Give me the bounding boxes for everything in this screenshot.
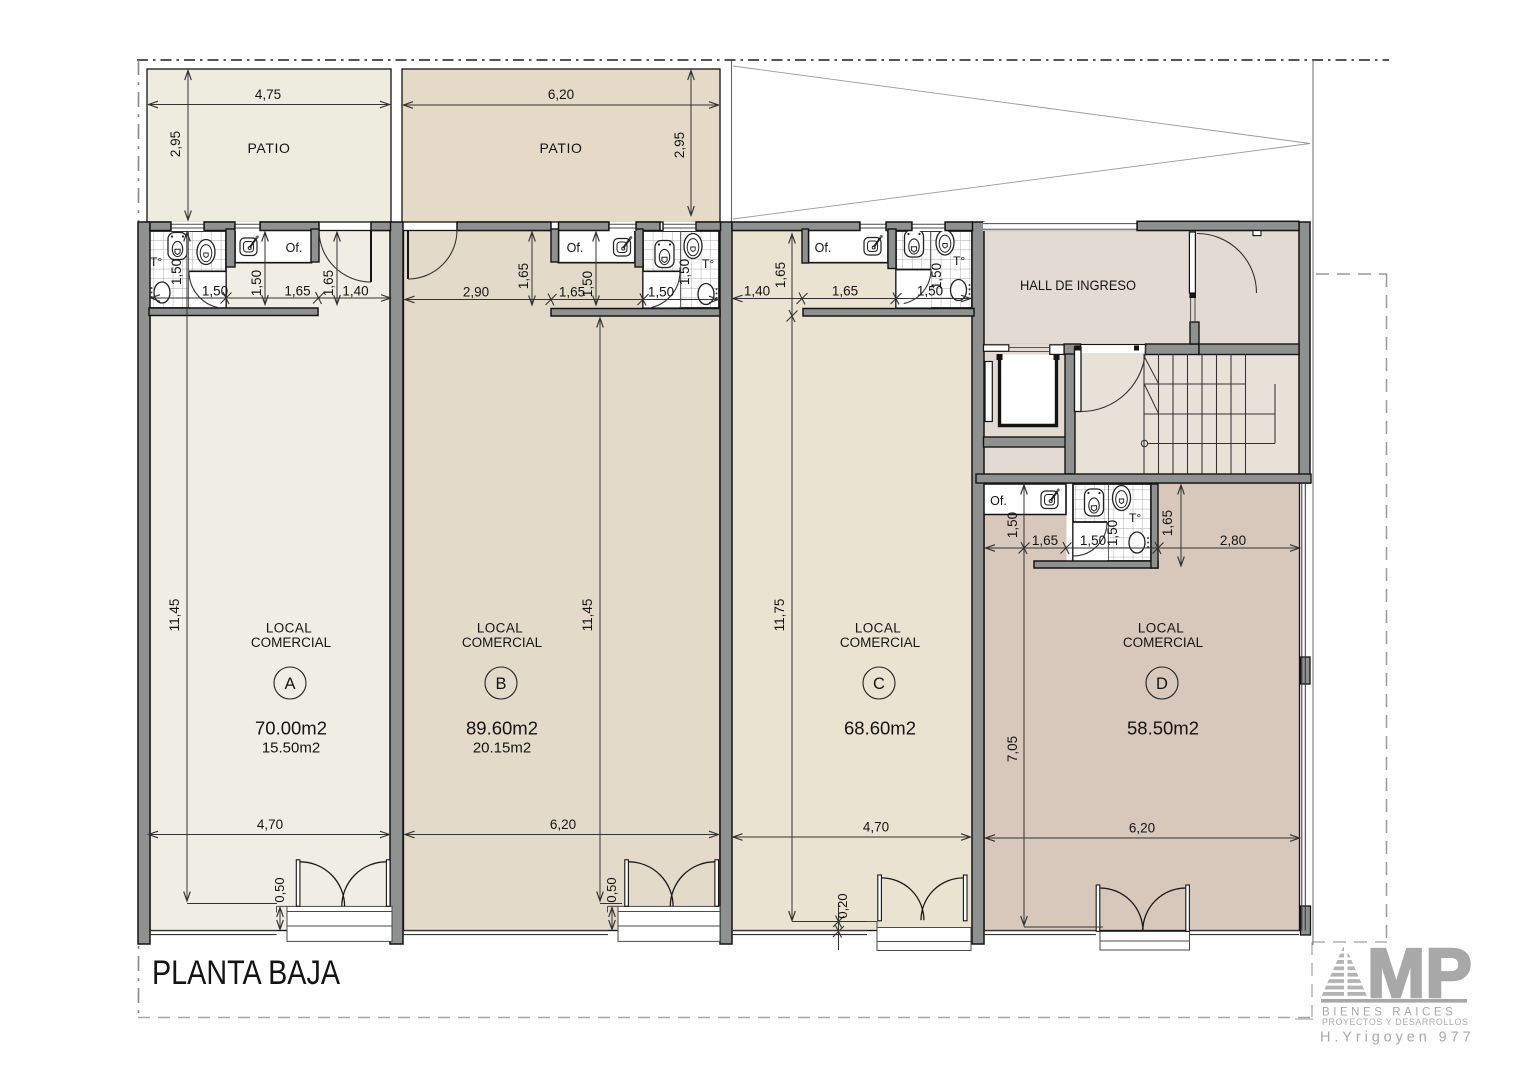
svg-text:B: B	[495, 675, 506, 693]
svg-text:1,40: 1,40	[342, 284, 368, 299]
svg-text:4,70: 4,70	[257, 817, 283, 832]
svg-text:Of.: Of.	[567, 241, 584, 255]
svg-text:7,05: 7,05	[1005, 736, 1020, 762]
svg-text:COMERCIAL: COMERCIAL	[251, 635, 332, 650]
svg-text:LOCAL: LOCAL	[266, 621, 312, 636]
svg-text:1,65: 1,65	[321, 270, 336, 296]
svg-text:PATIO: PATIO	[540, 140, 583, 156]
svg-text:1,50: 1,50	[1005, 512, 1020, 538]
svg-text:0,50: 0,50	[272, 877, 287, 902]
svg-text:1,50: 1,50	[677, 259, 692, 285]
svg-text:2,95: 2,95	[672, 132, 687, 158]
svg-text:0,50: 0,50	[604, 877, 619, 902]
svg-text:4,75: 4,75	[255, 87, 281, 102]
svg-text:D: D	[1156, 675, 1168, 693]
svg-text:1,65: 1,65	[832, 284, 858, 299]
svg-text:PATIO: PATIO	[248, 140, 291, 156]
svg-text:1,65: 1,65	[1032, 533, 1058, 548]
svg-text:T°: T°	[1129, 511, 1141, 525]
svg-text:C: C	[873, 675, 885, 693]
svg-text:2,95: 2,95	[168, 131, 183, 157]
svg-text:1,50: 1,50	[169, 259, 184, 285]
svg-text:1,65: 1,65	[284, 284, 310, 299]
svg-text:4,70: 4,70	[863, 820, 889, 835]
svg-text:70.00m2: 70.00m2	[255, 718, 327, 739]
svg-text:89.60m2: 89.60m2	[466, 718, 538, 739]
svg-text:0,20: 0,20	[835, 893, 850, 918]
svg-text:2,90: 2,90	[463, 285, 489, 300]
svg-text:PLANTA BAJA: PLANTA BAJA	[152, 954, 340, 992]
svg-text:6,20: 6,20	[550, 817, 576, 832]
svg-text:1,50: 1,50	[202, 284, 228, 299]
svg-text:A: A	[284, 675, 295, 693]
svg-text:LOCAL: LOCAL	[855, 621, 901, 636]
svg-text:1,50: 1,50	[1080, 533, 1106, 548]
svg-text:20.15m2: 20.15m2	[473, 740, 531, 757]
svg-text:T°: T°	[953, 254, 965, 268]
svg-text:COMERCIAL: COMERCIAL	[462, 635, 543, 650]
svg-text:LOCAL: LOCAL	[477, 621, 523, 636]
svg-text:11,75: 11,75	[772, 599, 787, 632]
svg-text:1,50: 1,50	[917, 284, 943, 299]
svg-text:Of.: Of.	[815, 241, 832, 255]
svg-text:2,80: 2,80	[1220, 533, 1246, 548]
svg-text:T°: T°	[150, 255, 162, 269]
svg-text:1,50: 1,50	[249, 270, 264, 296]
svg-text:Of.: Of.	[286, 241, 303, 255]
svg-text:COMERCIAL: COMERCIAL	[840, 635, 921, 650]
svg-text:Of.: Of.	[990, 494, 1007, 508]
svg-text:1,50: 1,50	[580, 271, 595, 297]
svg-text:15.50m2: 15.50m2	[262, 740, 320, 757]
svg-text:1,40: 1,40	[744, 284, 770, 299]
svg-text:11,45: 11,45	[167, 599, 182, 632]
svg-text:H.Yrigoyen 977: H.Yrigoyen 977	[1320, 1030, 1475, 1046]
svg-text:1,50: 1,50	[1105, 520, 1120, 546]
svg-text:PROYECTOS Y DESARROLLOS: PROYECTOS Y DESARROLLOS	[1322, 1017, 1468, 1027]
svg-text:1,65: 1,65	[773, 262, 788, 288]
svg-text:COMERCIAL: COMERCIAL	[1123, 635, 1204, 650]
svg-text:1,65: 1,65	[516, 263, 531, 289]
svg-text:68.60m2: 68.60m2	[844, 718, 916, 739]
svg-text:11,45: 11,45	[580, 599, 595, 632]
svg-text:HALL DE INGRESO: HALL DE INGRESO	[1020, 277, 1136, 293]
svg-text:LOCAL: LOCAL	[1138, 621, 1184, 636]
svg-text:6,20: 6,20	[548, 87, 574, 102]
svg-text:58.50m2: 58.50m2	[1127, 718, 1199, 739]
svg-text:T°: T°	[702, 257, 714, 271]
svg-text:6,20: 6,20	[1129, 821, 1155, 836]
svg-text:1,65: 1,65	[1160, 510, 1175, 536]
svg-text:1,50: 1,50	[648, 285, 674, 300]
